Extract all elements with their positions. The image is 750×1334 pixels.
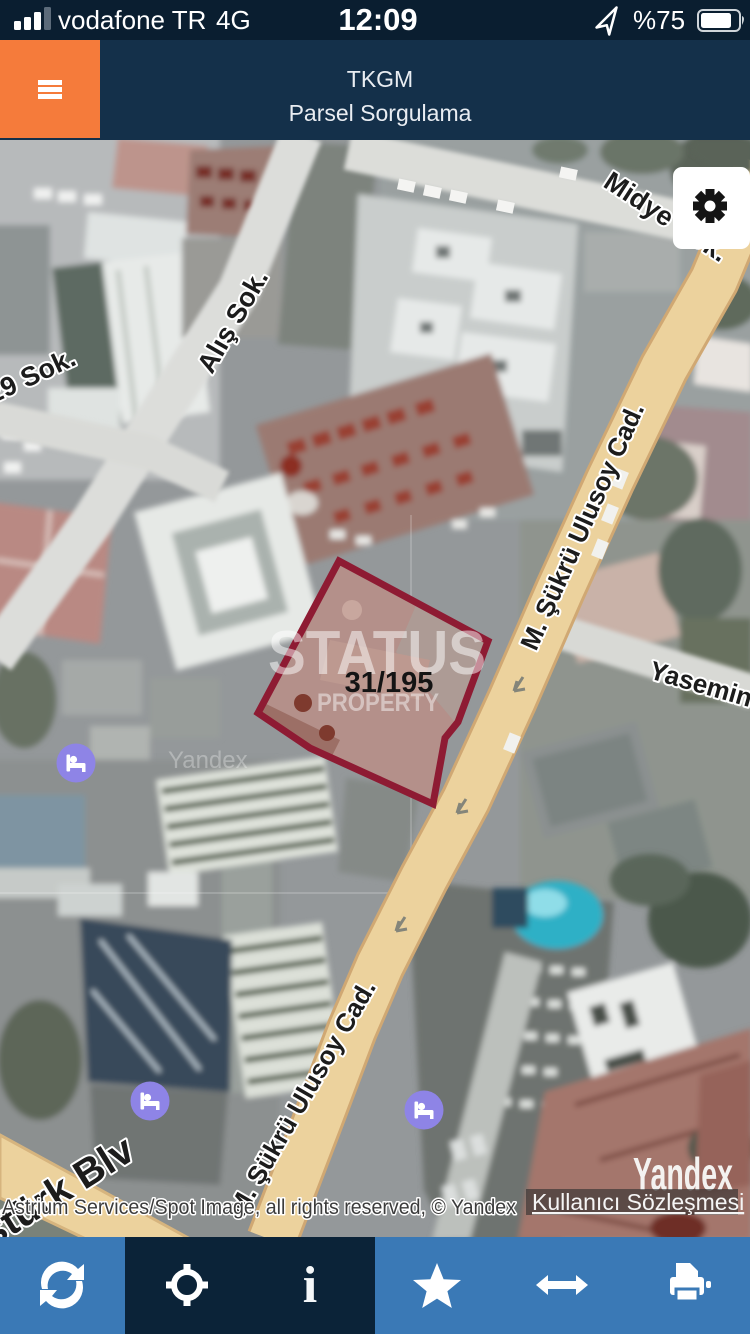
svg-text:Astrium Services/Spot Image, a: Astrium Services/Spot Image, all rights … xyxy=(2,1196,516,1219)
svg-text:4G: 4G xyxy=(216,5,251,35)
svg-text:i: i xyxy=(303,1257,317,1314)
svg-text:12:09: 12:09 xyxy=(338,2,417,37)
svg-text:Kullanıcı Sözleşmesi: Kullanıcı Sözleşmesi xyxy=(532,1189,744,1215)
svg-text:Yandex: Yandex xyxy=(168,747,248,774)
svg-text:%75: %75 xyxy=(633,5,685,35)
svg-text:31/195: 31/195 xyxy=(345,667,434,699)
svg-text:vodafone TR: vodafone TR xyxy=(58,5,206,35)
